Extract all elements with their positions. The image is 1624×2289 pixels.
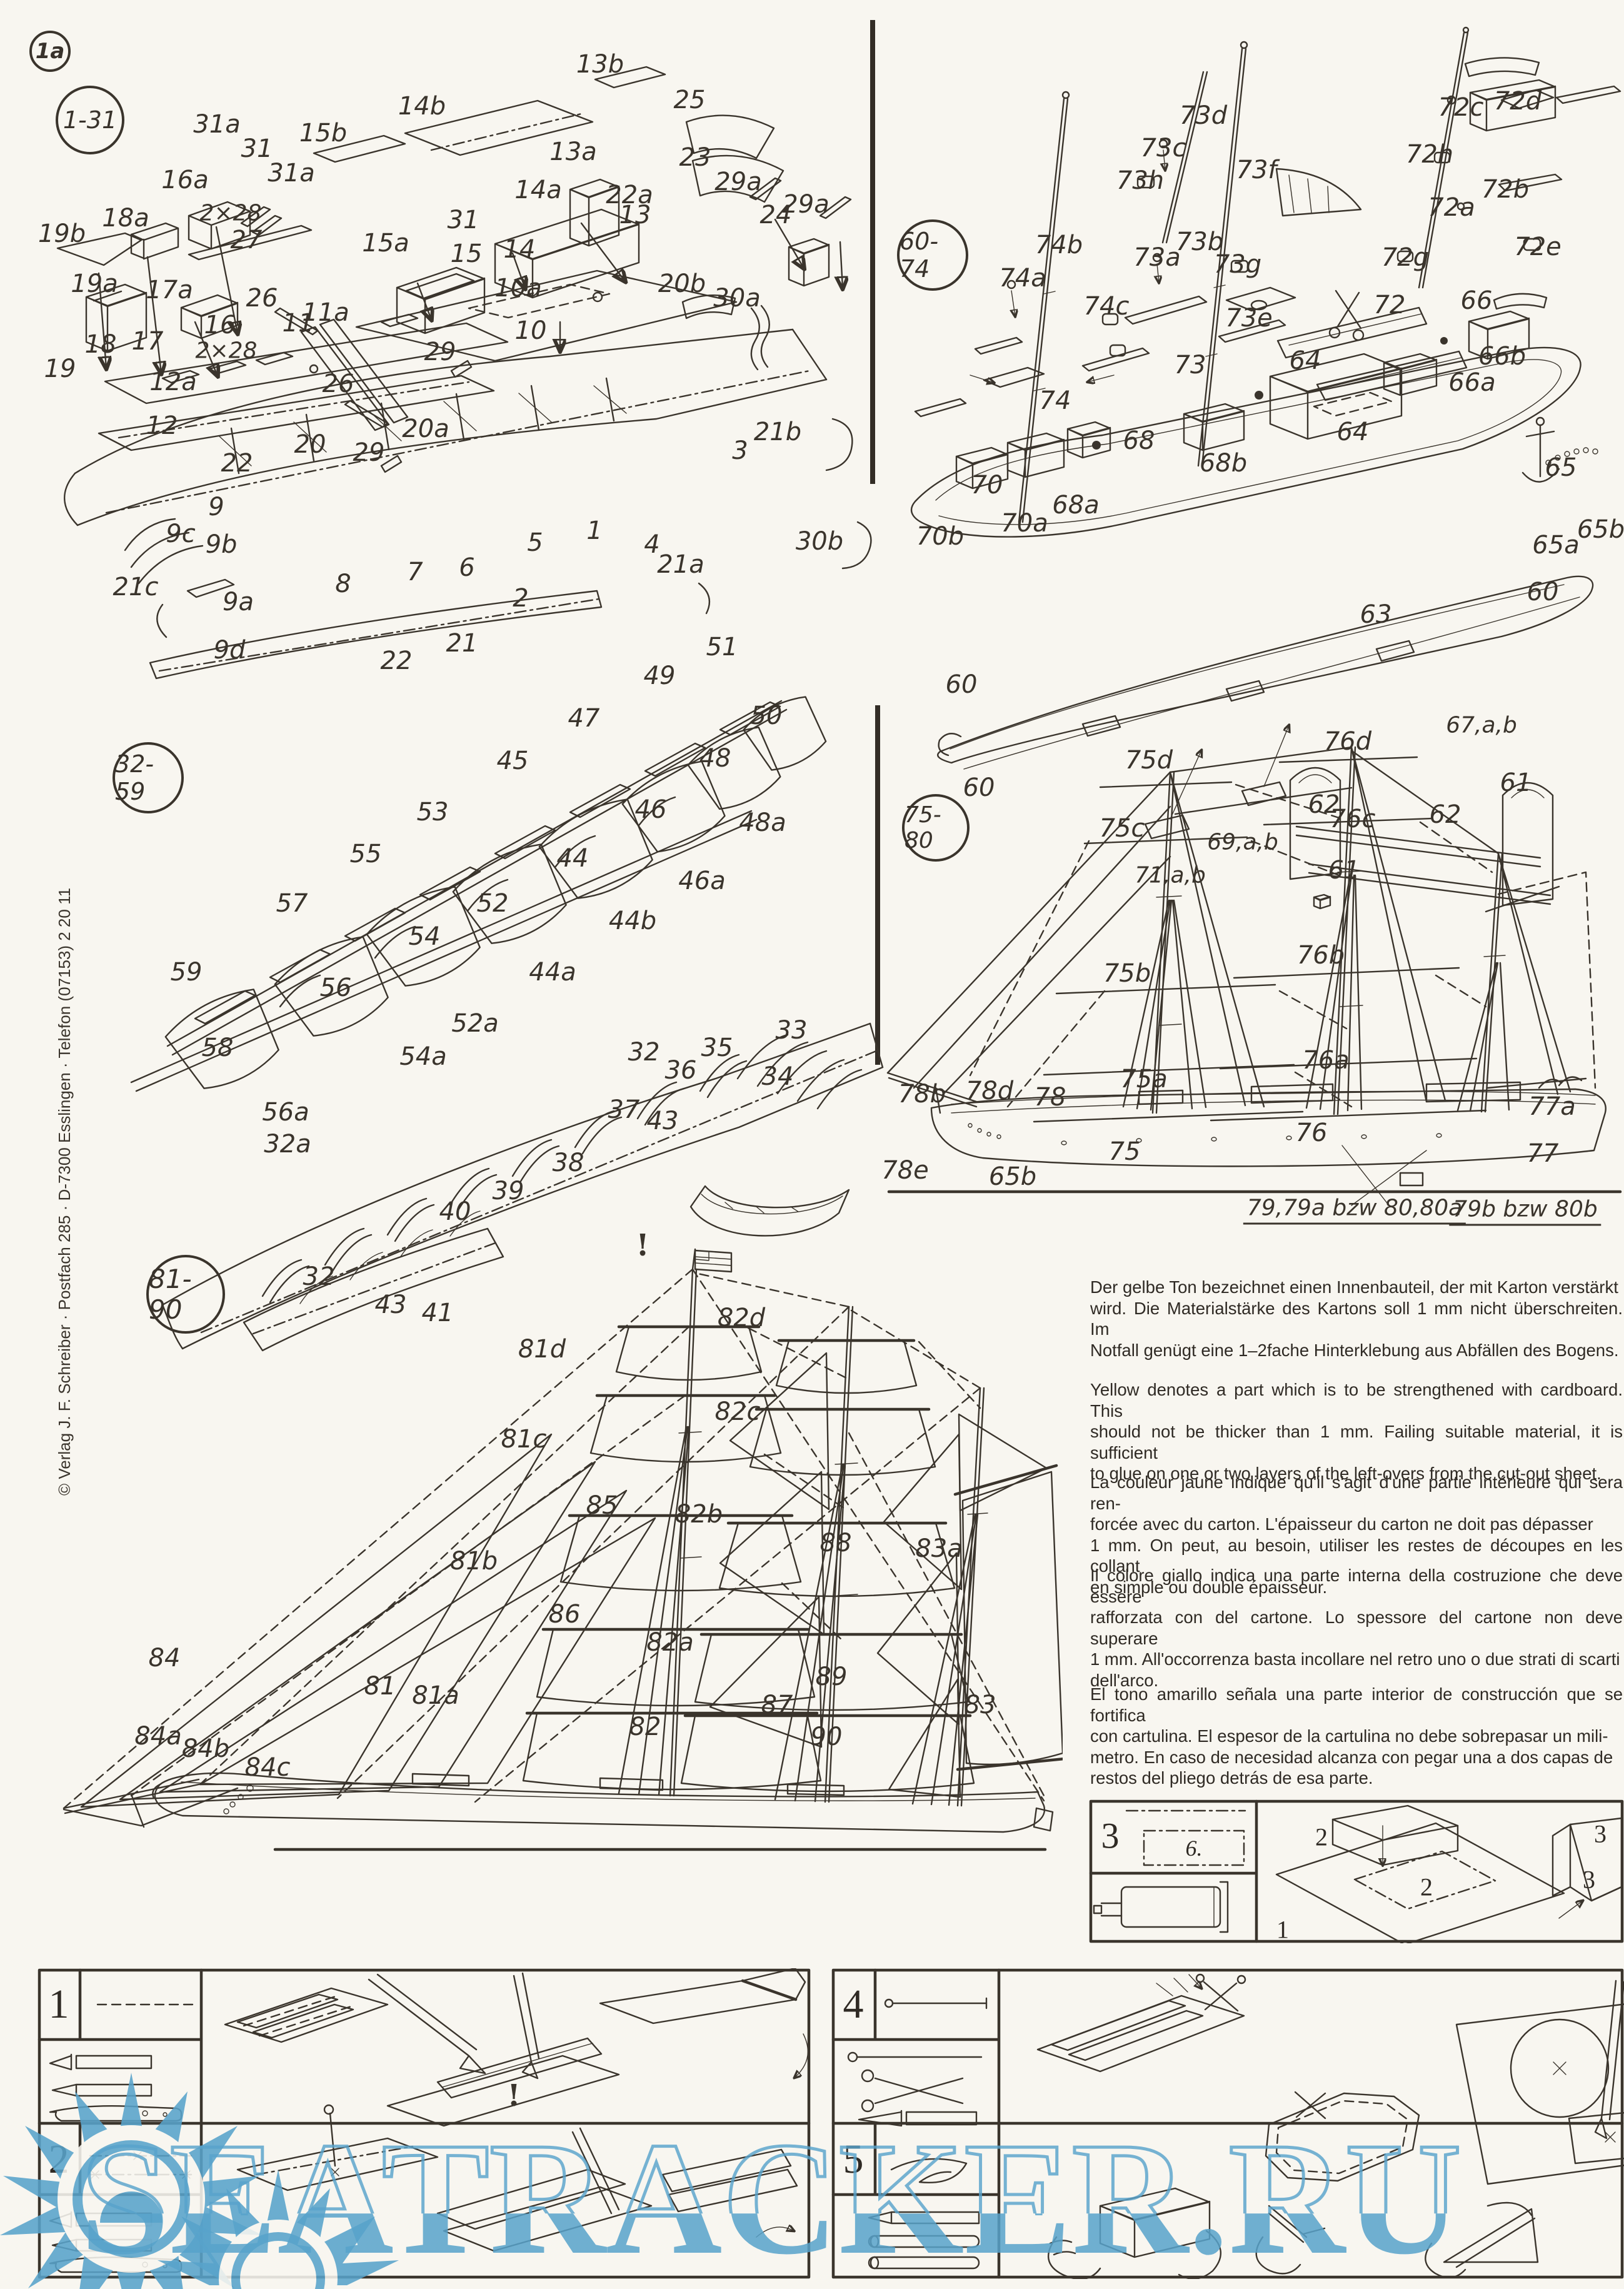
jibs [81,1434,655,1807]
hull-shell [64,330,826,525]
glue-tube-icon [1094,1882,1228,1932]
part-17a [181,295,238,338]
assembly-hands-diagram [1048,2188,1538,2279]
yard-bars [915,296,1285,416]
note-english: Yellow denotes a part which is to be str… [1090,1379,1623,1484]
step-3-number: 3 [1101,1815,1120,1857]
part-13a [570,179,619,246]
rigging-plan-drawing [876,713,1624,1213]
part-66-group [1465,58,1620,131]
glue-fig-2: 2 [1315,1823,1328,1852]
note-spanish: El tono amarillo señala una parte interi… [1090,1684,1623,1789]
scissors-icon [1330,291,1363,340]
note-german: Der gelbe Ton bezeichnet einen Innenbaut… [1090,1277,1623,1361]
pencil-icon [869,2212,979,2223]
part-14a [495,209,639,298]
part-29-pieces [381,361,471,472]
part-64-wedges [1278,308,1466,400]
part-30b-curl [843,522,871,568]
stern-frame-cluster [738,1035,861,1109]
part-23 [693,156,783,202]
curl-pattern [891,2159,966,2183]
strip-cutting-diagram [1038,1975,1419,2181]
glue-fig-3: 3 [1594,1819,1606,1849]
pin-icon [848,2053,981,2061]
anchor-icon [1523,418,1598,482]
stays-dashed [64,1269,1044,1808]
standing-rigging [888,747,1570,1111]
instruction-sheet: 1a 1-31 32-59 60-74 75-80 81-90 [0,0,1624,2289]
reinforce-box-drawing [1089,1799,1624,1943]
frame-ribs [280,797,675,1007]
masts [1019,28,1468,522]
scissors-icon [862,2070,963,2111]
pricking-diagram [238,2105,797,2251]
masts-and-yards [1034,747,1586,1122]
part-25 [686,116,774,158]
part-6-ref: 6. [1186,1835,1203,1861]
glue-fig-2b: 2 [1420,1873,1433,1902]
score-pattern [90,2152,191,2178]
note-italian: Il colore giallo indica una parte intern… [1090,1565,1623,1691]
part-29a-pair [750,178,851,218]
part-14b [405,101,593,155]
mast-fittings [1008,90,1561,356]
dinghy [691,1186,849,1235]
flag-icon [693,1249,731,1272]
hull-parts-drawing [31,28,875,691]
scoring-diagram [225,1968,808,2126]
bow-frames [125,519,203,583]
yellow-part-diagram [1276,1806,1621,1943]
part-2x28 [241,207,281,235]
part-24 [789,239,829,286]
bowsprit [888,1073,976,1113]
running-rigging-dashed [970,785,1595,1107]
glue-fig-1: 1 [1276,1915,1289,1944]
part-15b [314,136,405,162]
part-19b [58,233,141,265]
leader-lines [1342,1145,1426,1205]
part-30a [751,306,769,370]
part-13b [595,67,665,88]
part-18a [131,223,178,259]
part-19a [86,284,146,351]
steps-1-2-panel [38,1968,811,2279]
step-2-number: 2 [49,2136,69,2183]
step-1-number: 1 [49,1981,69,2028]
sail-plan-drawing [38,1245,1063,1858]
publisher-copyright: © Verlag J. F. Schreiber · Postfach 285 … [55,888,74,1496]
dowel-icons [869,2236,979,2268]
part-21b-curl [826,419,852,470]
shell-plates [161,691,831,1101]
glue-fig-3b: 3 [1583,1865,1595,1894]
step-5-number: 5 [843,2136,864,2183]
folding-knife-icon [50,2106,181,2272]
window-cutting-diagram [1456,1981,1624,2184]
part-20b [683,295,735,318]
deck-plan [911,294,1581,537]
hull-side [931,1077,1606,1185]
steps-4-5-panel [831,1968,1624,2279]
step-4-number: 4 [843,1981,864,2028]
pin-pattern [885,1998,986,2008]
